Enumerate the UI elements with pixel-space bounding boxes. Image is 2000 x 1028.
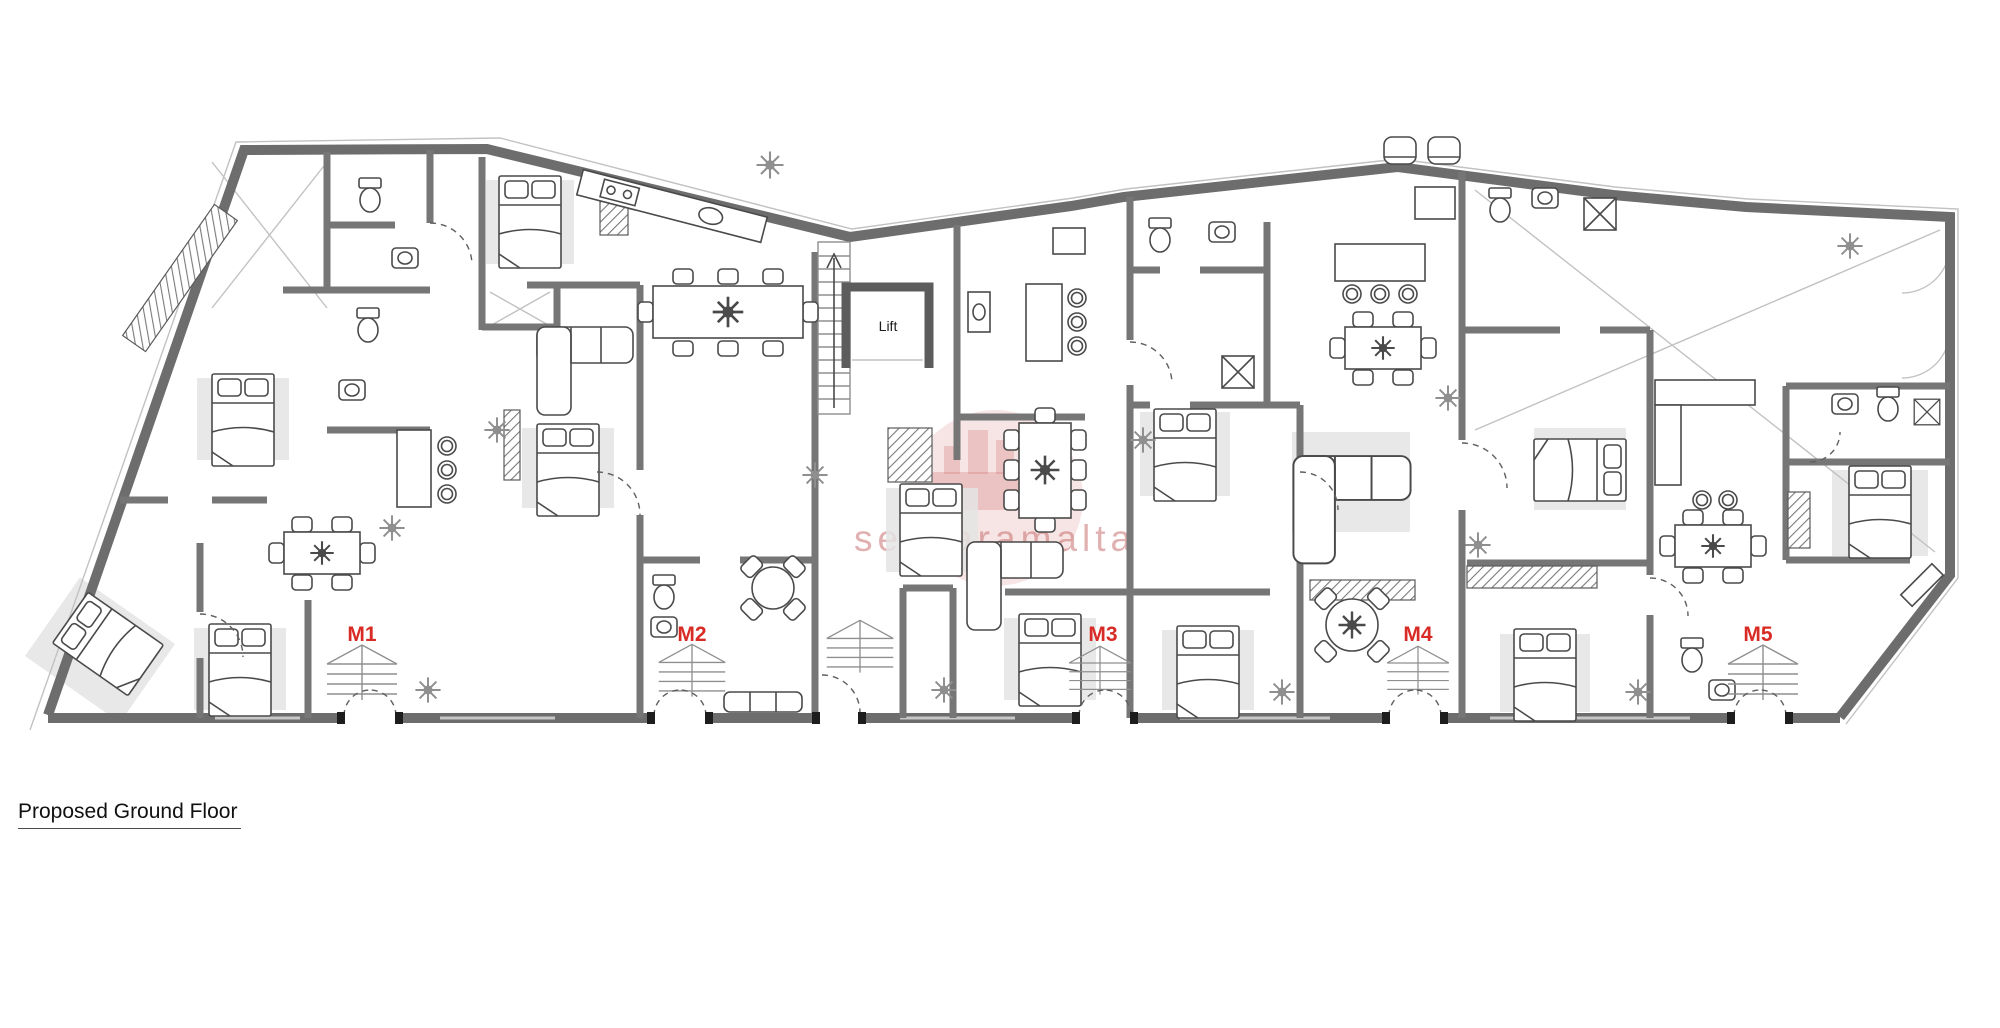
toilet bbox=[359, 178, 381, 212]
shower bbox=[1584, 198, 1616, 230]
plant bbox=[1837, 233, 1862, 258]
shower bbox=[1222, 356, 1254, 388]
unit-label-m1: M1 bbox=[347, 623, 376, 646]
dining-table bbox=[269, 517, 375, 590]
entry-stair-m5 bbox=[1728, 645, 1798, 700]
sink bbox=[339, 380, 365, 400]
lift-label: Lift bbox=[879, 318, 898, 334]
plant bbox=[1269, 679, 1294, 704]
kitchen-island bbox=[397, 430, 456, 507]
kitchen-counter bbox=[1655, 380, 1755, 509]
bed bbox=[900, 484, 962, 576]
plant bbox=[1465, 532, 1490, 557]
toilet bbox=[1149, 218, 1171, 252]
bed bbox=[499, 176, 561, 268]
armchair bbox=[1428, 137, 1460, 164]
toilet bbox=[653, 575, 675, 609]
sink bbox=[1709, 680, 1735, 700]
bed bbox=[1019, 614, 1081, 706]
plant bbox=[757, 152, 784, 179]
page-title: Proposed Ground Floor bbox=[18, 800, 241, 829]
bed bbox=[1849, 466, 1911, 558]
sofa bbox=[537, 327, 633, 415]
toilet bbox=[1489, 188, 1511, 222]
plant bbox=[415, 677, 440, 702]
bed bbox=[537, 424, 599, 516]
armchair bbox=[1384, 137, 1416, 164]
tv-unit bbox=[1415, 187, 1455, 219]
entry-stair-central bbox=[827, 620, 894, 672]
entry-stair-m1 bbox=[327, 645, 397, 700]
floor-plan-canvas: sensaramalta bbox=[0, 0, 2000, 1028]
kitchen-island bbox=[1335, 244, 1425, 303]
shower bbox=[1914, 399, 1940, 425]
sink bbox=[1209, 222, 1235, 242]
plant bbox=[802, 462, 827, 487]
bed bbox=[209, 624, 271, 716]
bed bbox=[1534, 439, 1626, 501]
floor-plan-page: sensaramalta bbox=[0, 0, 2000, 1028]
unit-label-m4: M4 bbox=[1403, 623, 1432, 646]
bed bbox=[1514, 629, 1576, 721]
sink bbox=[392, 248, 418, 268]
unit-label-m3: M3 bbox=[1088, 623, 1117, 646]
toilet bbox=[1681, 638, 1703, 672]
plant bbox=[1435, 385, 1460, 410]
toilet bbox=[357, 308, 379, 342]
unit-label-m5: M5 bbox=[1743, 623, 1772, 646]
round-table bbox=[739, 554, 806, 621]
entry-stair-m4 bbox=[1387, 646, 1449, 694]
dining-table bbox=[1330, 312, 1436, 385]
sink bbox=[1532, 188, 1558, 208]
sofa bbox=[724, 692, 802, 712]
bed bbox=[1154, 409, 1216, 501]
entry-stair-m2 bbox=[659, 644, 726, 696]
dining-table bbox=[1660, 510, 1766, 583]
plant bbox=[379, 515, 404, 540]
lift: Lift bbox=[846, 287, 929, 368]
kitchen-island bbox=[968, 228, 1086, 361]
toilet bbox=[1877, 387, 1899, 421]
bed bbox=[212, 374, 274, 466]
unit-label-m2: M2 bbox=[677, 623, 706, 646]
sink bbox=[1832, 394, 1858, 414]
dining-table bbox=[638, 269, 818, 356]
bed bbox=[1177, 626, 1239, 718]
sink bbox=[651, 617, 677, 637]
